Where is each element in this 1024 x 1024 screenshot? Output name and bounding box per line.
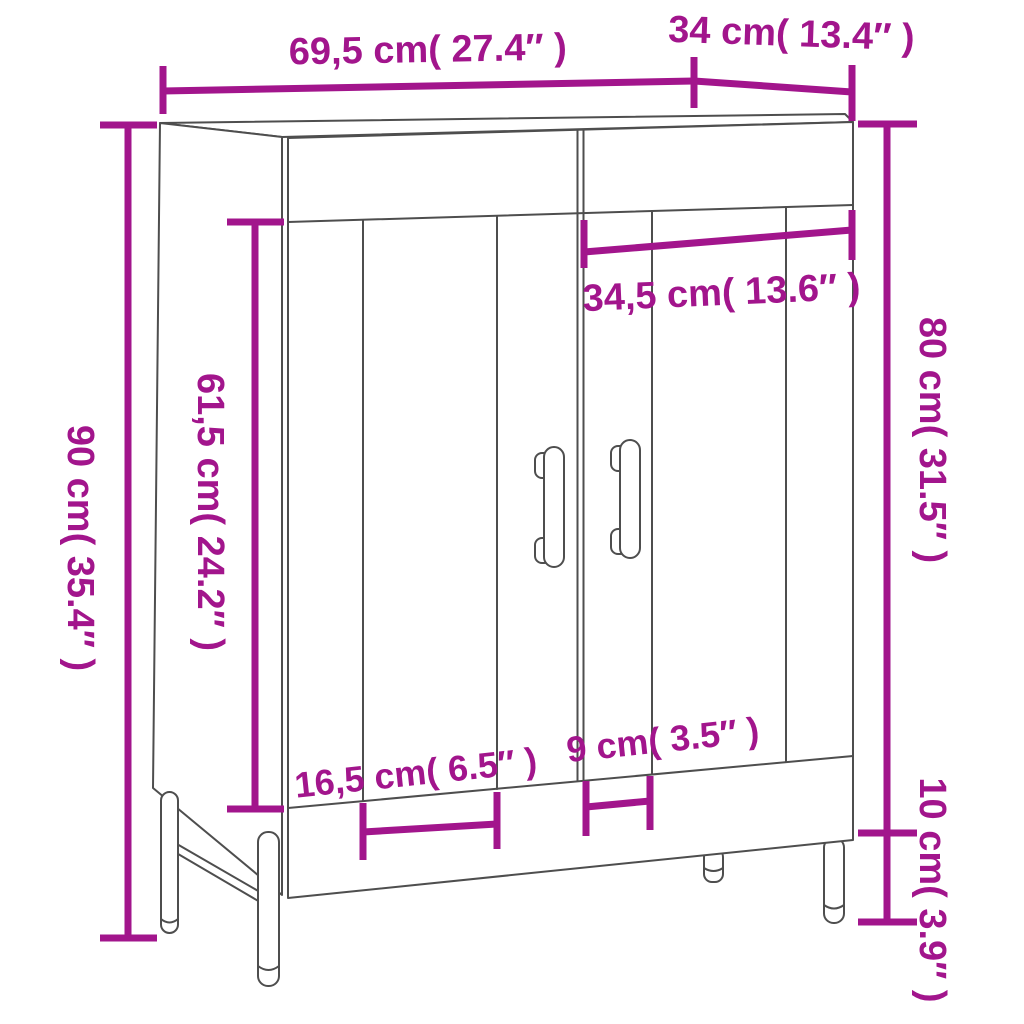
sideboard-dimension-drawing: 69,5 cm( 27.4″ ) 34 cm( 13.4″ ) 90 cm( 3…	[0, 0, 1024, 1024]
dimension-diagram: 69,5 cm( 27.4″ ) 34 cm( 13.4″ ) 90 cm( 3…	[0, 0, 1024, 1024]
cabinet-leg-front-left	[258, 832, 279, 986]
cabinet-leg-back-left	[161, 792, 178, 933]
handle-bar-left	[544, 447, 564, 567]
dim-label-body-height: 80 cm( 31.5″ )	[911, 317, 953, 563]
dim-label-depth: 34 cm( 13.4″ )	[668, 9, 916, 60]
dim-line-depth	[694, 81, 852, 92]
dim-line-total-width	[163, 81, 694, 91]
dim-label-total-height: 90 cm( 35.4″ )	[59, 425, 101, 671]
cabinet-leg-front-right	[824, 838, 844, 923]
dim-label-door-height: 61,5 cm( 24.2″ )	[189, 373, 231, 651]
dim-label-leg-height: 10 cm( 3.9″ )	[911, 777, 953, 1002]
handle-bar-right	[620, 440, 640, 558]
dim-label-total-width: 69,5 cm( 27.4″ )	[288, 27, 567, 74]
